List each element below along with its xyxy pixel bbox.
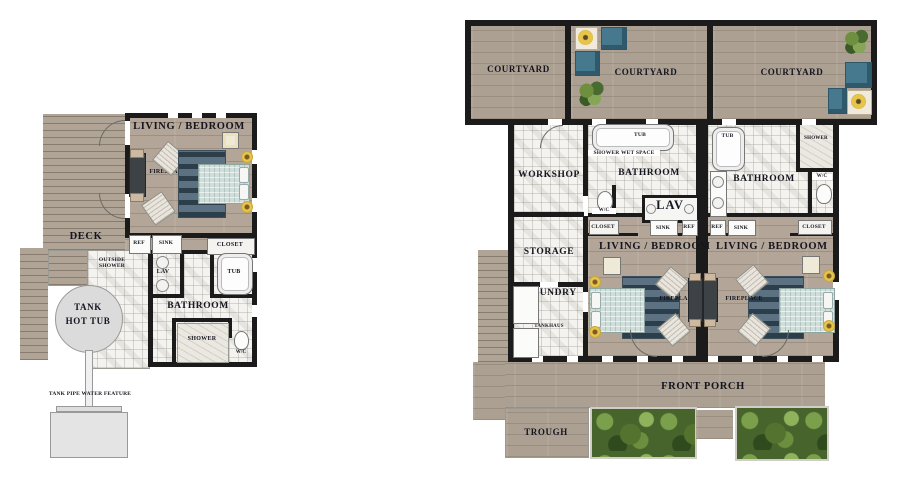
- ref-left-label: REF: [680, 224, 698, 230]
- wc-left-label: W/C: [592, 208, 616, 214]
- tub-label: TUB: [217, 269, 251, 276]
- shower-label: SHOWER: [177, 336, 227, 343]
- wall: [180, 252, 184, 298]
- planter-box: [735, 406, 829, 461]
- ref-right-label: REF: [708, 224, 726, 230]
- nightstand: [603, 257, 621, 275]
- shower-right-unit: [800, 125, 833, 168]
- potted-plant: [577, 80, 607, 108]
- nightstand: [802, 256, 820, 274]
- ref-label: REF: [129, 240, 149, 246]
- lav-basin: [156, 256, 169, 269]
- wall: [148, 294, 184, 298]
- fireplace-hearth: [704, 319, 716, 327]
- planter-box: [590, 407, 697, 459]
- courtyard-2-label: COURTYARD: [586, 67, 706, 77]
- living-right-label: LIVING / BEDROOM: [716, 241, 826, 253]
- patio-umbrella: [578, 30, 593, 45]
- window: [192, 113, 202, 118]
- pillow: [239, 184, 249, 200]
- pillow: [239, 167, 249, 183]
- wc-label: W/C: [230, 350, 252, 356]
- patio-lounger: [575, 51, 600, 76]
- door-opening: [548, 119, 562, 125]
- lav-basin: [156, 279, 169, 292]
- wall: [148, 250, 153, 367]
- pillow: [823, 292, 833, 309]
- wall-lamp: [589, 326, 601, 338]
- wall-lamp: [823, 270, 835, 282]
- patio-umbrella: [851, 94, 866, 109]
- floor-plan-canvas: DECK LIVING / BEDROOM: [0, 0, 900, 482]
- window: [168, 113, 178, 118]
- fireplace-unit: [688, 278, 703, 322]
- window: [216, 113, 226, 118]
- closet-right-label: CLOSET: [797, 224, 831, 230]
- bathroom-left-label: BATHROOM: [609, 168, 689, 179]
- patio-table-blue: [845, 62, 872, 88]
- door-opening: [722, 119, 736, 125]
- outside-shower-label: OUTSIDE SHOWER: [90, 257, 134, 270]
- workshop-label: WORKSHOP: [512, 170, 586, 181]
- pillow: [591, 292, 601, 309]
- wall: [796, 168, 833, 172]
- trough-label: TROUGH: [505, 427, 587, 437]
- tank-label-1: TANK: [55, 302, 121, 312]
- wall-lamp: [589, 276, 601, 288]
- nightstand: [222, 132, 239, 149]
- lav-basin: [712, 176, 724, 188]
- deck-label: DECK: [55, 231, 117, 243]
- front-porch-left-ext: [473, 362, 505, 420]
- front-porch-label: FRONT PORCH: [648, 381, 758, 393]
- wall-lamp: [241, 151, 253, 163]
- wall: [514, 212, 584, 217]
- fireplace-hearth: [689, 319, 701, 327]
- sink-label: SINK: [152, 240, 180, 246]
- toilet: [234, 331, 249, 350]
- window: [252, 305, 257, 317]
- fireplace-hearth: [704, 273, 716, 281]
- wall: [172, 318, 176, 367]
- fireplace-right-label: FIREPLACE: [724, 296, 764, 303]
- lav-basin: [646, 204, 656, 214]
- garden-step: [696, 410, 733, 439]
- bathroom-right-label: BATHROOM: [724, 174, 804, 185]
- deck-stairs: [48, 250, 90, 286]
- fireplace-hearth: [130, 193, 144, 202]
- lav-basin: [684, 204, 694, 214]
- wall-lamp: [241, 201, 253, 213]
- wall: [172, 318, 232, 322]
- tank-label-2: HOT TUB: [55, 316, 121, 326]
- closet-left-label: CLOSET: [586, 224, 620, 230]
- toilet: [816, 184, 832, 204]
- sink-left-label: SINK: [650, 225, 676, 231]
- tub-right-label: TUB: [712, 133, 743, 139]
- fireplace-hearth: [689, 273, 701, 281]
- bathroom-label: BATHROOM: [160, 301, 236, 312]
- courtyard-1-label: COURTYARD: [471, 64, 566, 74]
- washer: [513, 286, 539, 324]
- water-feature-label: TANK PIPE WATER FEATURE: [42, 391, 138, 397]
- tub-left-label: TUB: [628, 132, 652, 138]
- lav-label: LAV: [151, 269, 175, 276]
- storage-label: STORAGE: [512, 247, 586, 258]
- patio-table-blue: [601, 27, 627, 50]
- wall: [465, 20, 877, 26]
- sink-right-label: SINK: [728, 225, 754, 231]
- door-opening: [125, 121, 130, 145]
- closet-label: CLOSET: [207, 242, 253, 249]
- dock-strip: [20, 248, 48, 360]
- door-opening: [540, 282, 558, 287]
- shower-stall: [177, 323, 229, 363]
- wall: [210, 250, 214, 298]
- lav-basin: [712, 197, 724, 209]
- dryer: [513, 328, 539, 358]
- shower-right-label: SHOWER: [798, 136, 834, 142]
- wall: [125, 113, 257, 118]
- living-left-label: LIVING / BEDROOM: [599, 241, 709, 253]
- potted-plant: [843, 28, 871, 56]
- wet-space-label: SHOWER WET SPACE: [588, 150, 660, 156]
- water-basin: [50, 412, 128, 458]
- patio-lounger: [828, 88, 847, 114]
- fireplace-hearth: [130, 149, 144, 158]
- wc-right-label: W/C: [812, 174, 832, 180]
- fireplace-unit: [703, 278, 718, 322]
- wall-lamp: [823, 320, 835, 332]
- fireplace-unit: [129, 153, 146, 197]
- wall-front: [508, 356, 839, 362]
- side-stairs: [478, 250, 508, 362]
